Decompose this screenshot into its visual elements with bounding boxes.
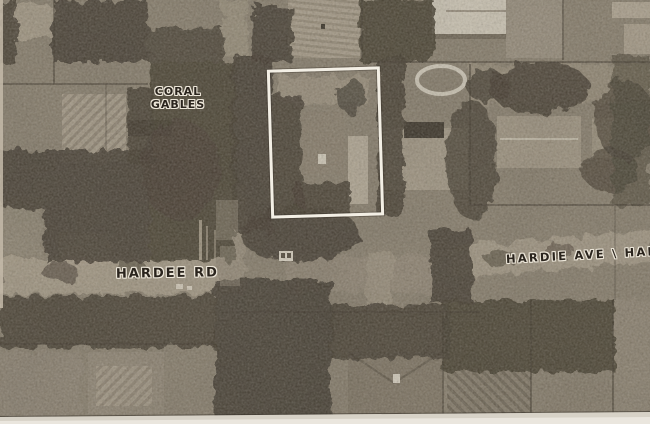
subject-parcel-highlight (267, 66, 384, 218)
scanned-aerial-photo: CORAL GABLES HARDEE RD HARDIE AVE \ HAR (0, 0, 650, 424)
city-label-line1: CORAL (146, 85, 210, 98)
city-label-line2: GABLES (146, 98, 210, 111)
street-label-hardee-rd: HARDEE RD (116, 265, 219, 281)
city-label: CORAL GABLES (146, 85, 210, 111)
